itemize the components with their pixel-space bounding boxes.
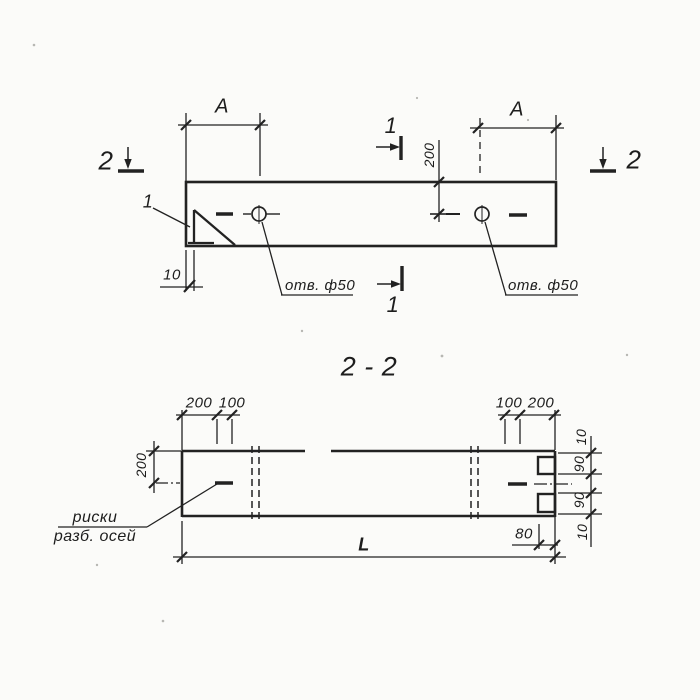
drawing-canvas: A A 2 2 1 1 1 200 10 отв. ф50 отв. ф50 2… <box>0 0 700 700</box>
span-dim-a-left: A <box>215 96 229 119</box>
dim-200-plan-label: 200 <box>421 143 437 168</box>
section-1-label-top: 1 <box>385 113 398 139</box>
plan-hole-left <box>216 205 280 224</box>
chain-dim-90-lower: 90 <box>571 492 587 509</box>
dim-a-right <box>470 115 564 180</box>
section-view-title: 2 - 2 <box>341 352 398 383</box>
dim-80-label: 80 <box>515 526 533 543</box>
section-2-label-left: 2 <box>99 146 114 177</box>
dim-length-label: L <box>358 535 370 556</box>
section-beam-outline <box>182 451 555 517</box>
hidden-hole-right <box>471 446 478 521</box>
dim-top-right-100: 100 <box>496 395 523 412</box>
hidden-hole-left <box>252 446 259 521</box>
dim-10-plan-label: 10 <box>163 267 181 284</box>
dim-top-left-100: 100 <box>219 395 246 412</box>
section-mark-1-top <box>376 136 401 160</box>
section-2-label-right: 2 <box>627 145 642 176</box>
dim-top-right-200: 200 <box>528 395 555 412</box>
plan-hole-right <box>446 205 527 224</box>
dims-top-left <box>176 410 240 450</box>
dim-a-left <box>178 113 268 181</box>
dims-top-right <box>498 410 561 450</box>
dim-200-section <box>146 441 182 493</box>
chain-dim-10-top: 10 <box>573 429 589 446</box>
section-mark-2-right <box>590 147 616 171</box>
section-mark-1-bottom <box>377 266 402 291</box>
detail-callout-leader <box>153 208 190 227</box>
dim-200-section-label: 200 <box>133 453 149 478</box>
hole-label-left: отв. ф50 <box>285 277 355 294</box>
chain-dim-10-bottom: 10 <box>574 524 590 541</box>
drawing-linework <box>0 0 700 700</box>
axis-note-line1: риски <box>73 509 118 527</box>
axis-note-line2: разб. осей <box>54 528 136 546</box>
dim-top-left-200: 200 <box>186 395 213 412</box>
detail-callout-label: 1 <box>143 192 154 213</box>
section-mark-2-left <box>118 147 144 171</box>
section-1-label-bottom: 1 <box>387 292 400 318</box>
chain-dim-90-upper: 90 <box>571 456 587 473</box>
plan-beam-outline <box>186 182 556 246</box>
span-dim-a-right: A <box>510 99 524 122</box>
hole-label-right: отв. ф50 <box>508 277 578 294</box>
